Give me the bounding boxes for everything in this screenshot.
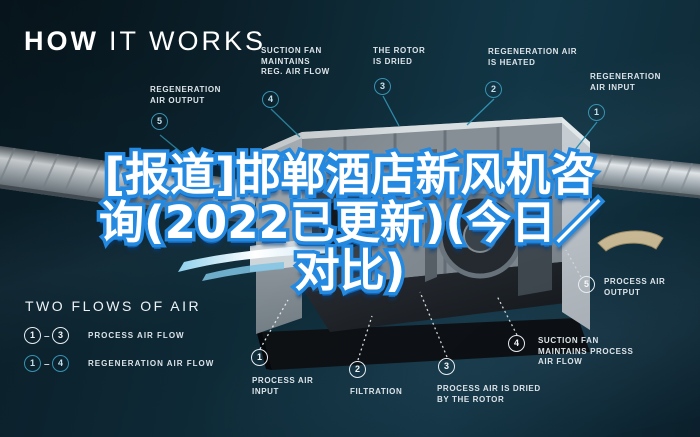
air-outlet-scoop — [598, 231, 663, 251]
title-word-how: HOW — [24, 26, 99, 56]
legend-dash: – — [44, 331, 50, 342]
step-badge-proc-1: 1 — [251, 349, 268, 366]
label-suction-fan-reg: SUCTION FAN MAINTAINS REG. AIR FLOW — [261, 46, 330, 78]
label-process-air-dried: PROCESS AIR IS DRIED BY THE ROTOR — [437, 384, 541, 405]
step-badge-proc-5: 5 — [578, 276, 595, 293]
label-filtration: FILTRATION — [350, 387, 402, 398]
legend-dash: – — [44, 359, 50, 370]
label-regeneration-air-heated: REGENERATION AIR IS HEATED — [488, 47, 577, 68]
step-badge-reg-2: 2 — [485, 81, 502, 98]
label-regeneration-air-input: REGENERATION AIR INPUT — [590, 72, 661, 93]
step-badge-reg-3: 3 — [374, 78, 391, 95]
legend-badge-regen-from: 1 — [24, 355, 41, 372]
page-title: HOWIT WORKS — [24, 26, 266, 57]
step-badge-proc-2: 2 — [349, 361, 366, 378]
title-word-it-works: IT WORKS — [109, 26, 266, 56]
label-regeneration-air-output: REGENERATION AIR OUTPUT — [150, 85, 221, 106]
step-badge-reg-5: 5 — [151, 113, 168, 130]
label-rotor-is-dried: THE ROTOR IS DRIED — [373, 46, 425, 67]
left-air-duct — [0, 142, 258, 224]
step-badge-proc-3: 3 — [438, 358, 455, 375]
label-suction-fan-process: SUCTION FAN MAINTAINS PROCESS AIR FLOW — [538, 336, 633, 368]
legend-badge-regen-to: 4 — [52, 355, 69, 372]
label-process-air-output: PROCESS AIR OUTPUT — [604, 277, 665, 298]
machine-cutaway — [250, 117, 590, 370]
step-badge-reg-1: 1 — [588, 104, 605, 121]
legend-label-regeneration-air-flow: REGENERATION AIR FLOW — [88, 359, 214, 368]
legend-heading: TWO FLOWS OF AIR — [25, 298, 201, 314]
legend-badge-process-from: 1 — [24, 327, 41, 344]
legend-label-process-air-flow: PROCESS AIR FLOW — [88, 331, 185, 340]
infographic-canvas: HOWIT WORKS REGENERATION AIR OUTPUT 5 SU… — [0, 0, 700, 437]
label-process-air-input: PROCESS AIR INPUT — [252, 376, 313, 397]
legend-badge-process-to: 3 — [52, 327, 69, 344]
right-air-duct — [572, 151, 700, 199]
step-badge-proc-4: 4 — [508, 335, 525, 352]
step-badge-reg-4: 4 — [262, 91, 279, 108]
